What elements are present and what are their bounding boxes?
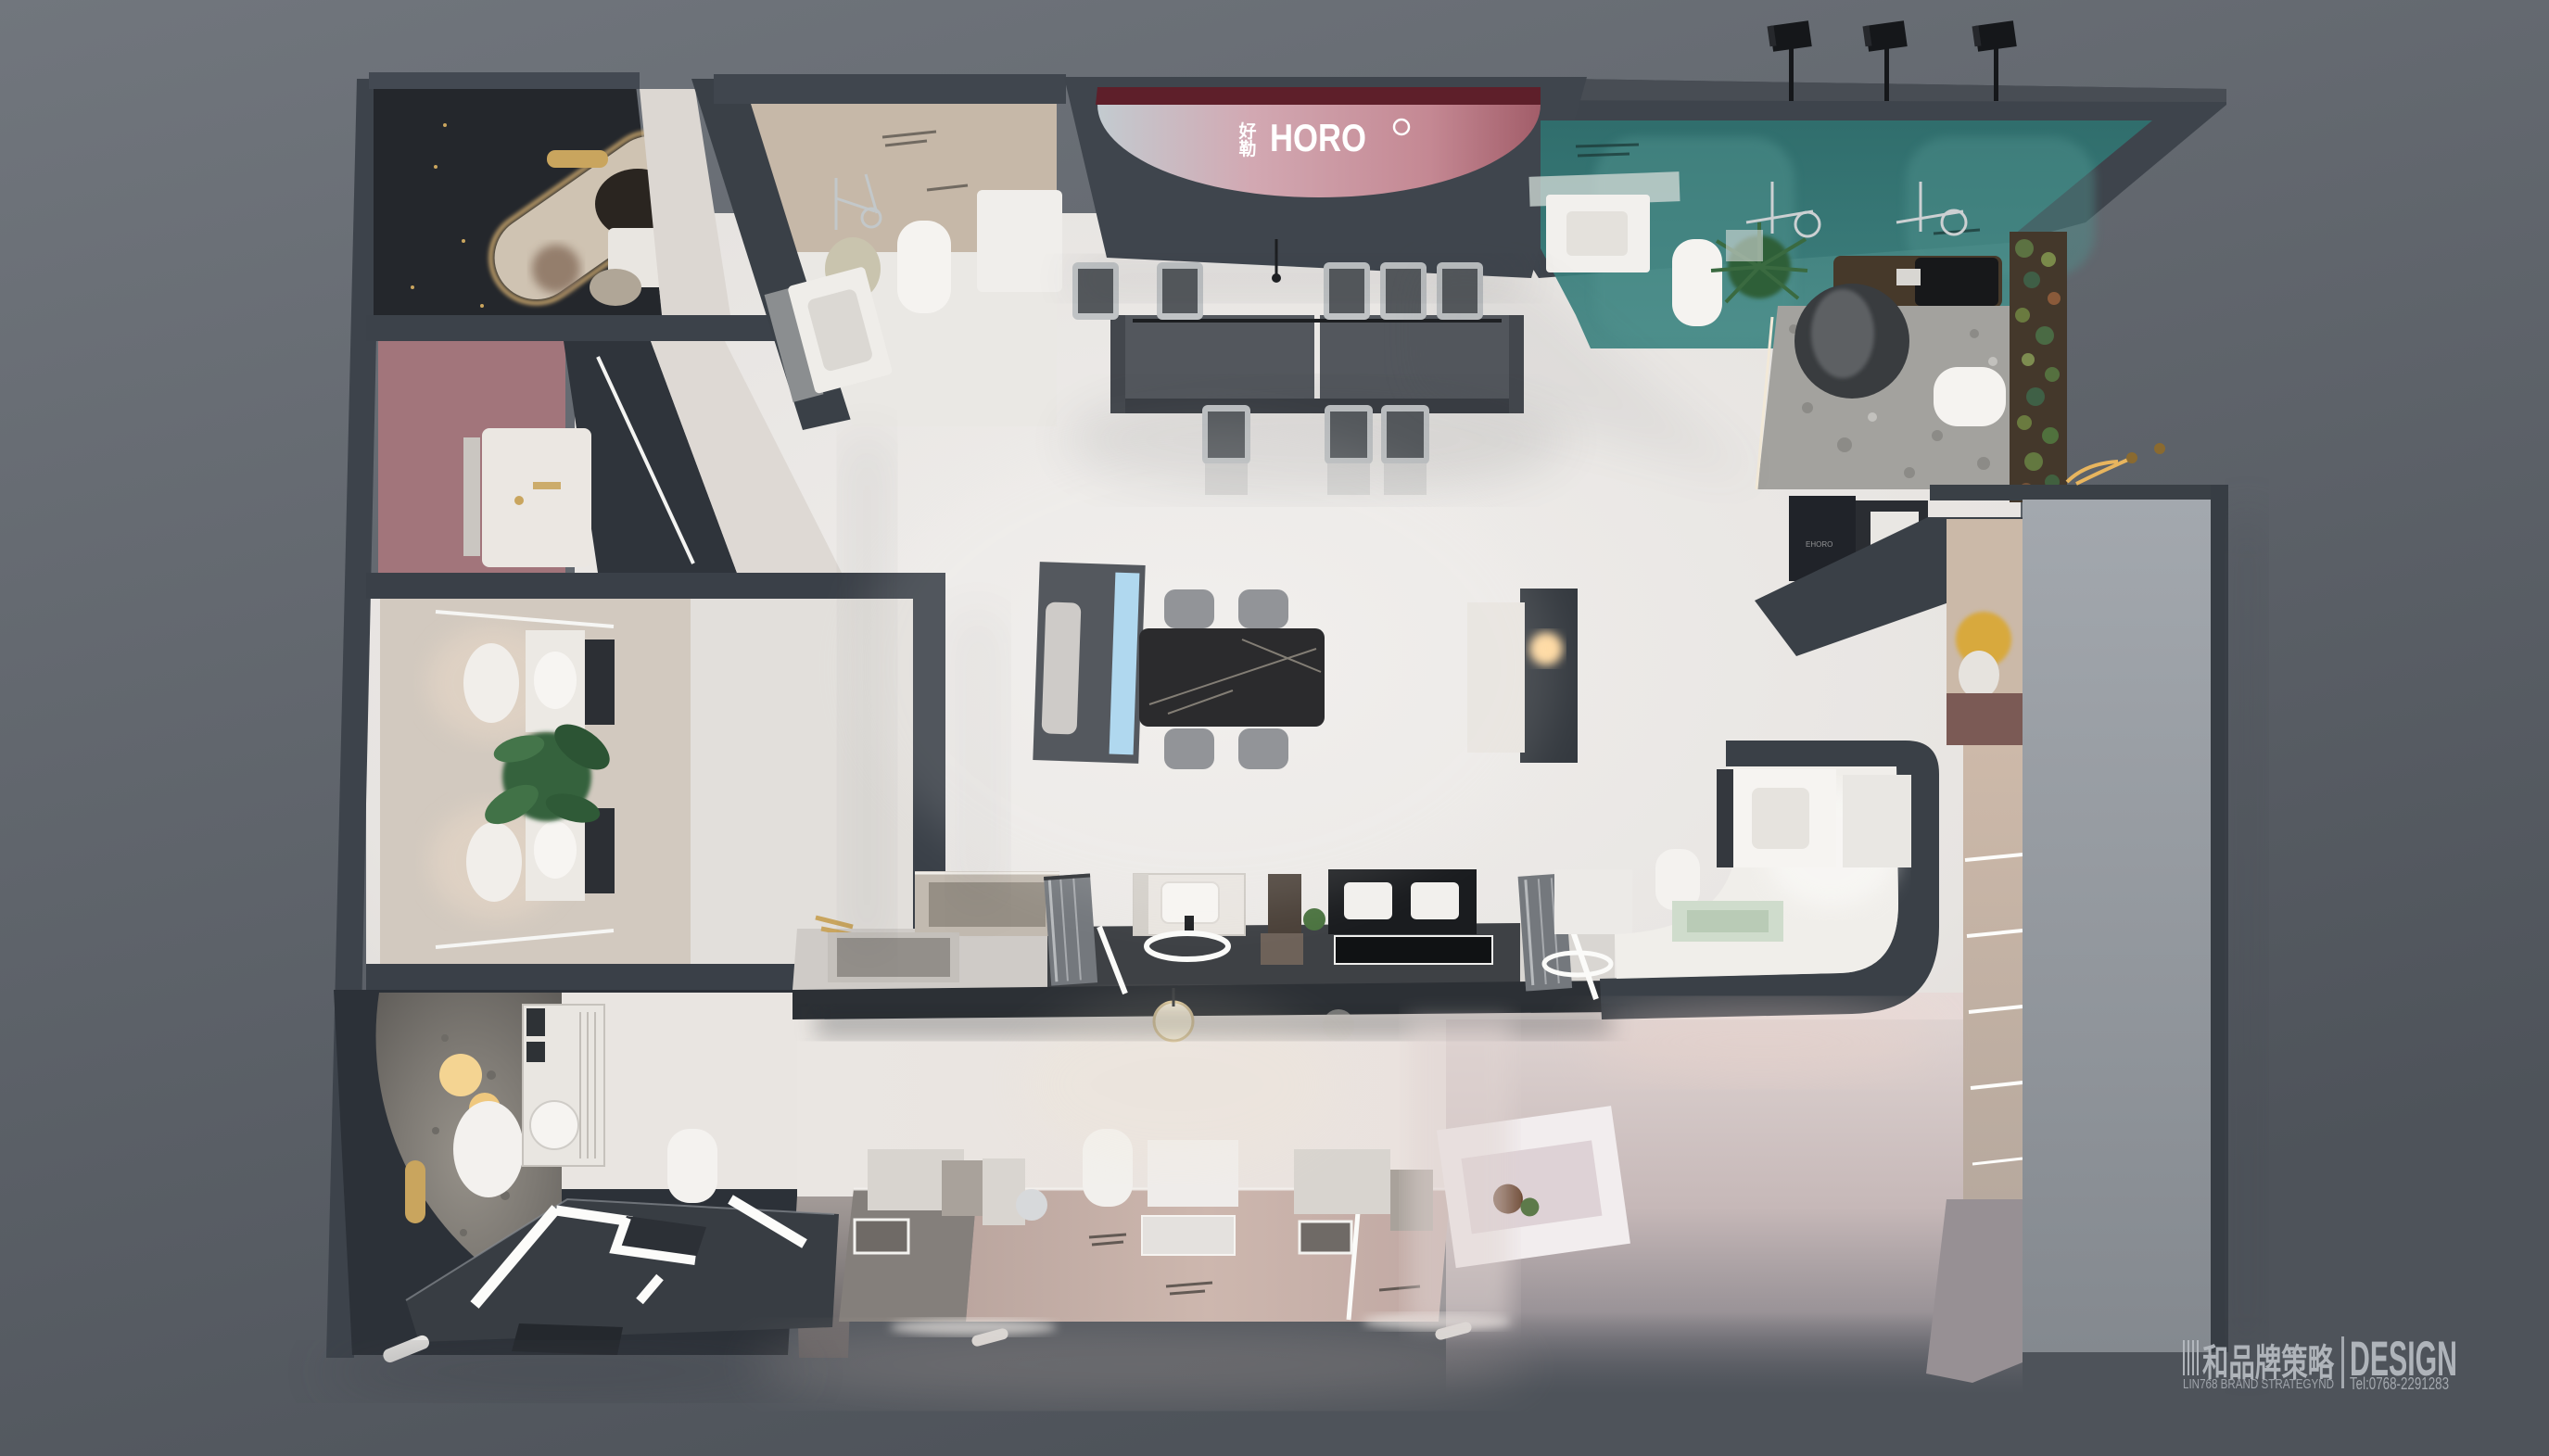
svg-text:好: 好 [1237, 120, 1256, 142]
svg-text:勒: 勒 [1238, 138, 1256, 159]
svg-text:Tel:0768-2291283: Tel:0768-2291283 [2350, 1374, 2449, 1393]
svg-text:HORO: HORO [1270, 116, 1366, 159]
svg-text:LIN768 BRAND STRATEGYND: LIN768 BRAND STRATEGYND [2183, 1376, 2334, 1392]
svg-text:EHORO: EHORO [1806, 540, 1832, 549]
